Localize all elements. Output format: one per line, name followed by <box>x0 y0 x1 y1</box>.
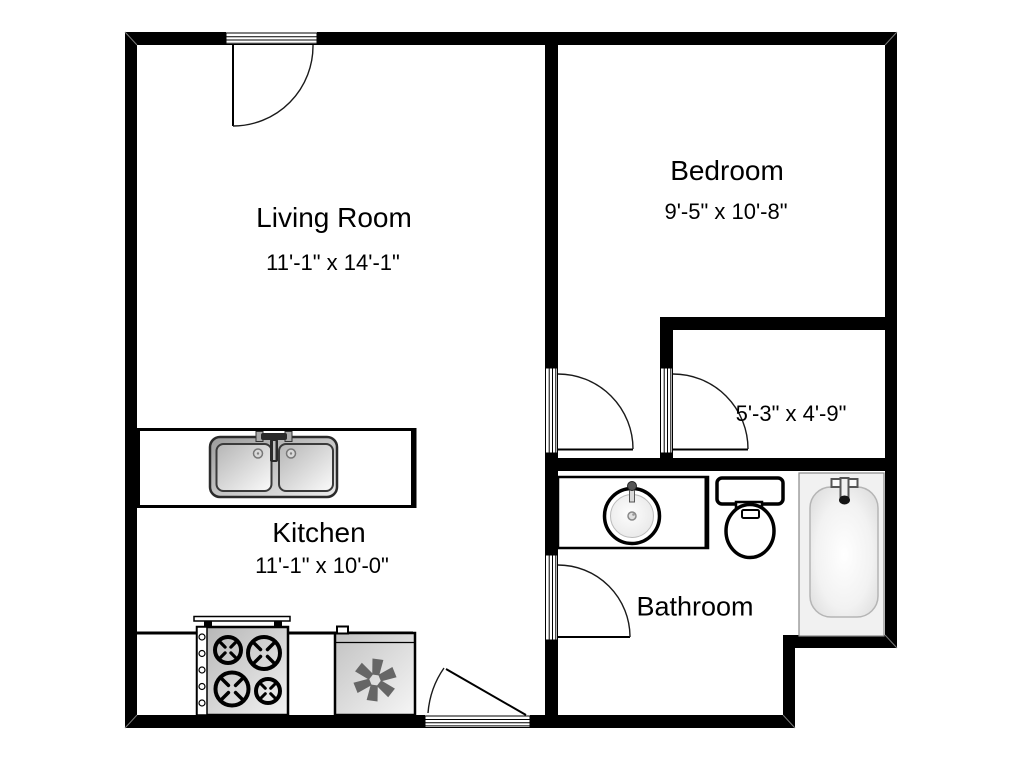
door-leaf <box>446 669 526 715</box>
living-room-label: Living Room <box>256 204 412 232</box>
left-wall <box>125 32 137 728</box>
top-wall-right <box>317 32 897 45</box>
top-wall-left <box>125 32 226 45</box>
vanity-drain <box>628 512 636 520</box>
toilet-seat-tab <box>742 510 759 518</box>
right-wall <box>885 32 897 648</box>
closet-top-wall <box>660 317 897 330</box>
vanity-sink-icon <box>558 476 709 549</box>
door-swing-arc <box>428 668 444 713</box>
bedroom-label: Bedroom <box>670 157 784 185</box>
wall-corner-bevels <box>125 32 897 728</box>
kitchen-sink-icon <box>210 432 337 498</box>
center-wall-bottom <box>545 640 558 728</box>
bathroom-label: Bathroom <box>636 594 753 621</box>
door-swing-arc <box>233 45 313 126</box>
bathtub-spout <box>839 496 850 505</box>
closet-left-wall-top <box>660 317 673 368</box>
kitchen-counter-end-edge <box>411 428 417 508</box>
living-room-dimensions: 11'-1" x 14'-1" <box>266 252 400 274</box>
tub-alcove-bottom-wall <box>783 635 897 648</box>
closet-dimensions: 5'-3" x 4'-9" <box>736 403 847 425</box>
kitchen-entry-door <box>425 668 530 728</box>
floor-plan: Living Room 11'-1" x 14'-1" Bedroom 9'-5… <box>0 0 1024 768</box>
door-swing-arc <box>558 565 630 637</box>
bottom-wall-right <box>530 715 795 728</box>
bathroom-step-wall <box>783 635 795 728</box>
walls <box>125 32 897 728</box>
bathroom-door <box>546 555 631 640</box>
toilet-icon <box>717 478 783 558</box>
doors <box>226 33 748 728</box>
kitchen-label: Kitchen <box>272 519 365 547</box>
bathtub-icon <box>799 473 884 636</box>
refrigerator-icon <box>335 627 415 716</box>
bathtub-basin <box>810 487 878 617</box>
stove-icon <box>194 617 290 716</box>
living-room-entry-door <box>226 33 317 126</box>
kitchen-dimensions: 11'-1" x 10'-0" <box>255 555 389 577</box>
floor-plan-drawing <box>0 0 1024 768</box>
closet-left-wall-bottom <box>660 453 673 471</box>
bottom-wall-left <box>125 715 425 728</box>
bathroom-top-wall <box>545 458 897 471</box>
bedroom-dimensions: 9'-5" x 10'-8" <box>664 201 787 223</box>
door-swing-arc <box>558 374 633 449</box>
toilet-tank <box>717 478 783 504</box>
center-wall-top <box>545 32 558 368</box>
refrigerator-handle <box>337 627 348 634</box>
vanity-faucet-knob <box>628 482 637 491</box>
stove-back-rail <box>194 617 290 622</box>
bedroom-door <box>546 368 634 453</box>
